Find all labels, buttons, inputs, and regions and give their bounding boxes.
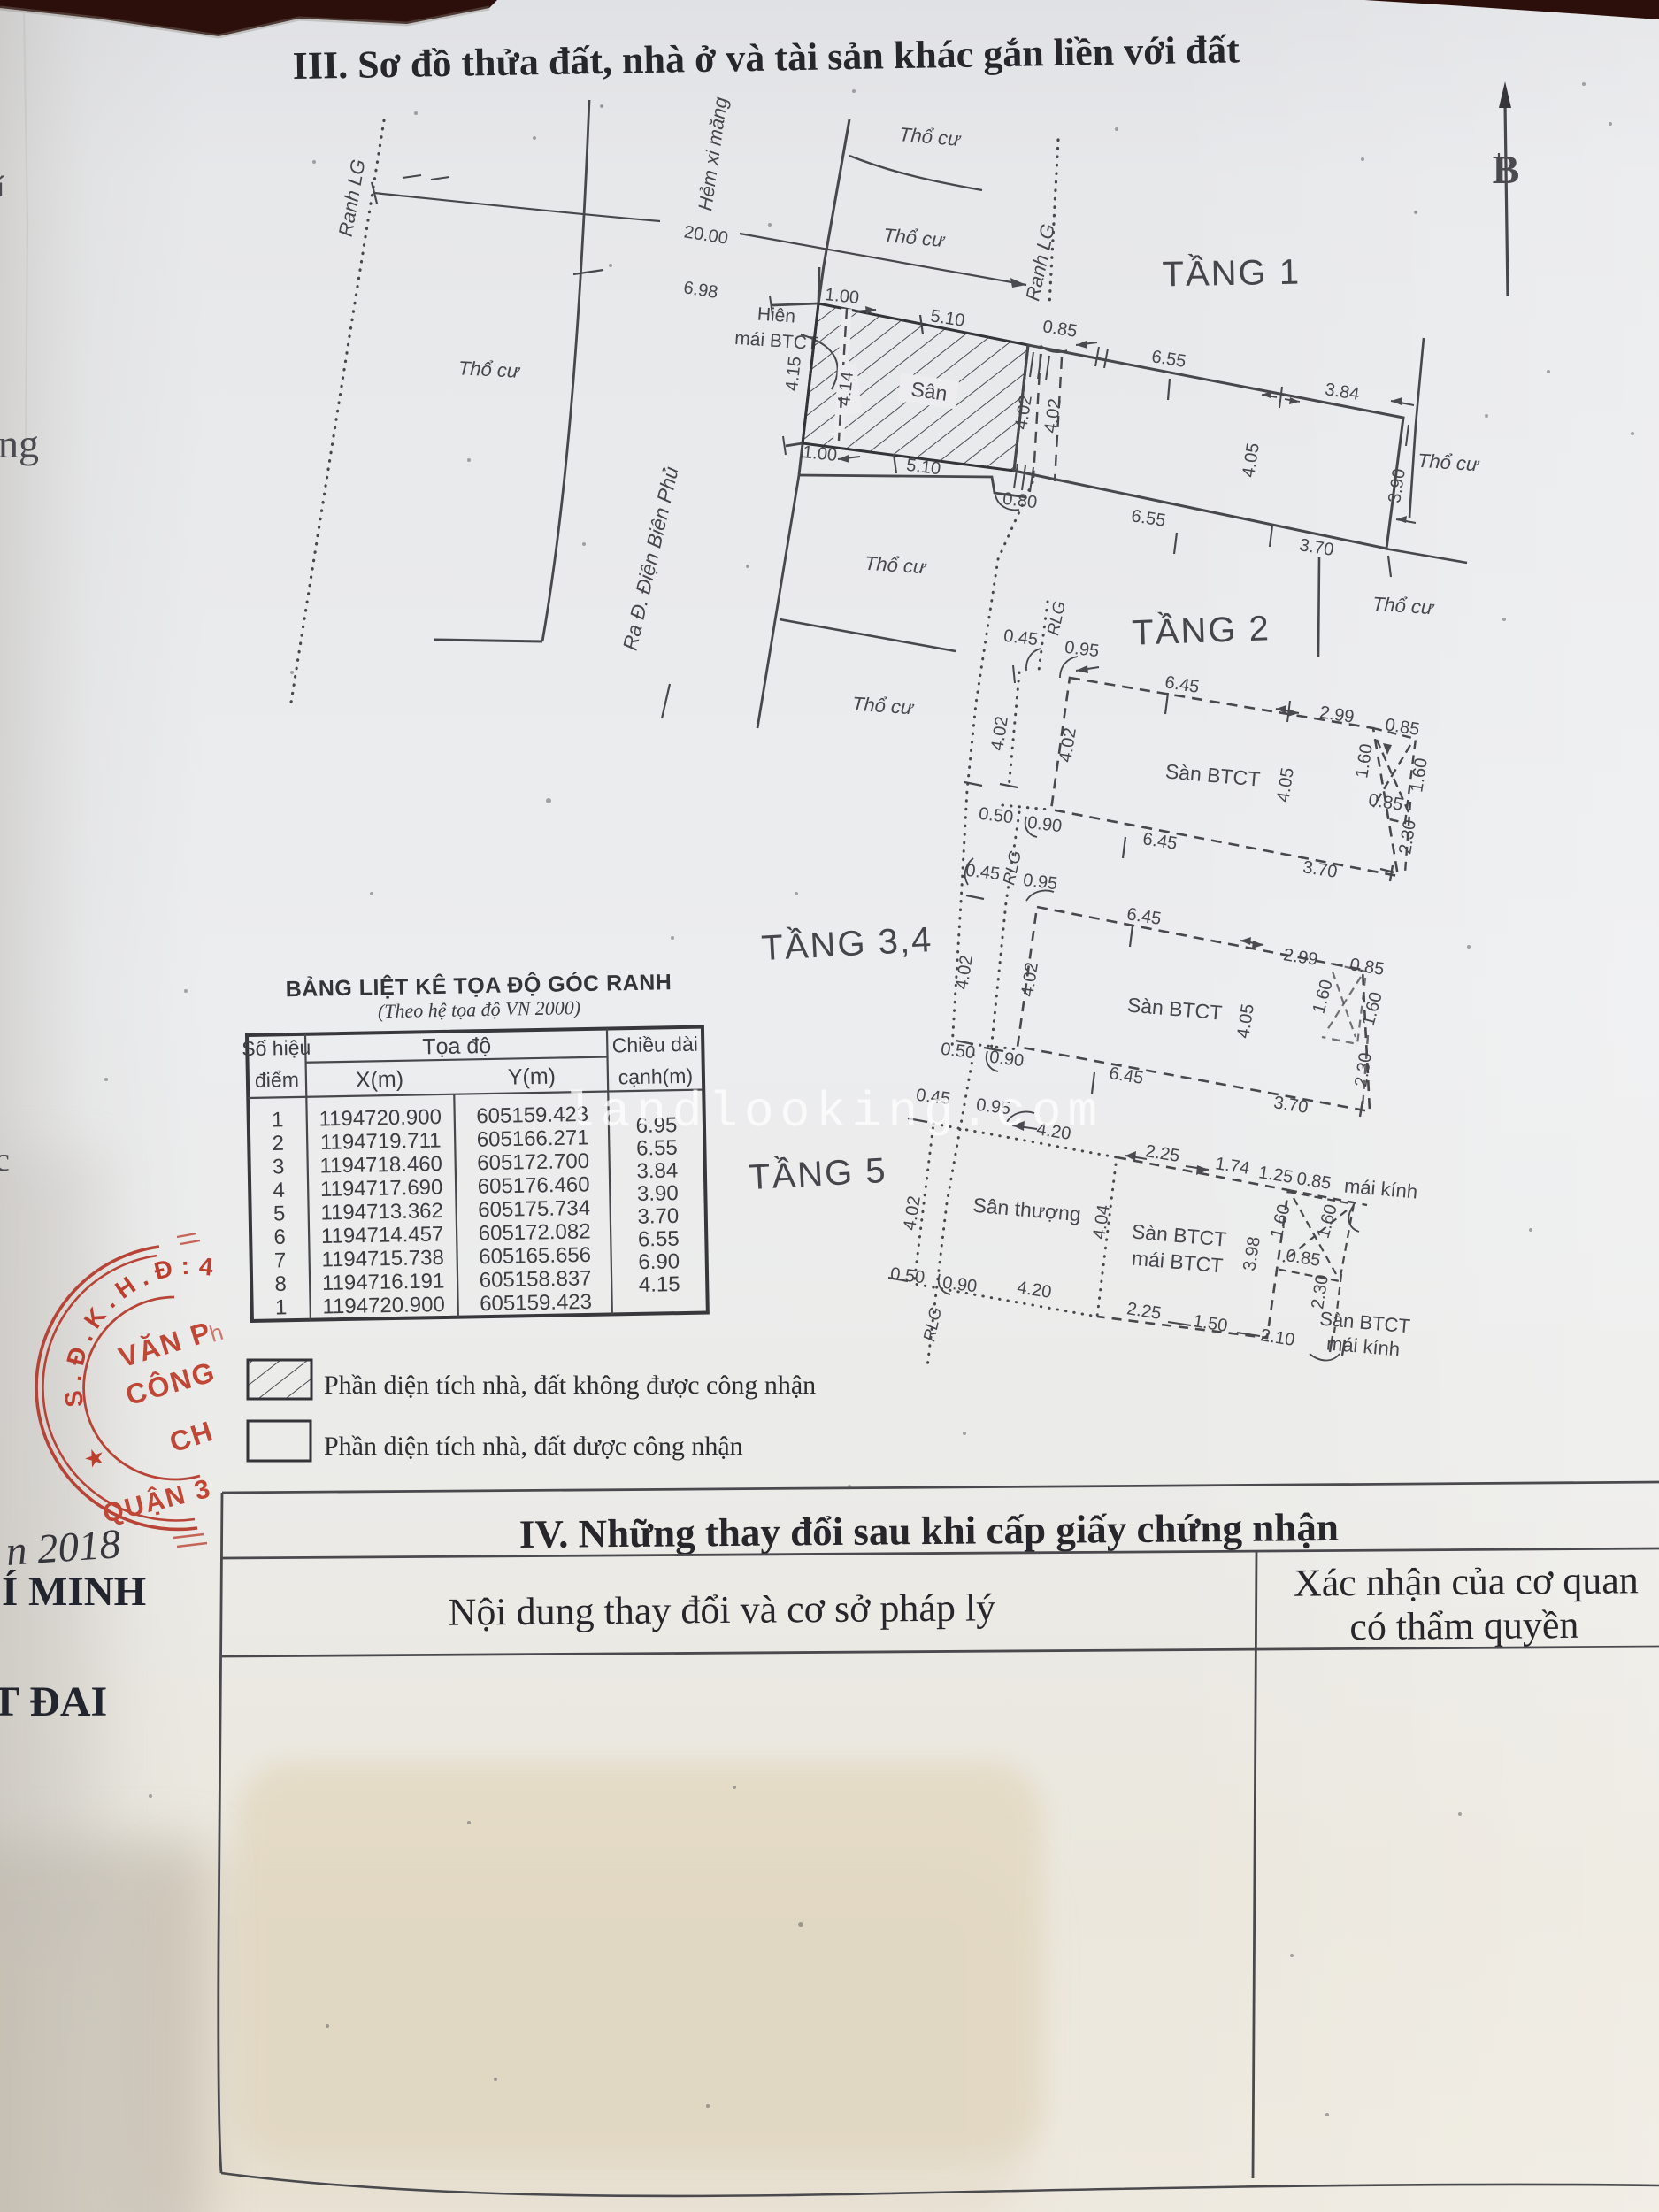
- svg-text:605176.460: 605176.460: [478, 1172, 590, 1198]
- svg-text:í: í: [0, 171, 5, 204]
- svg-text:TẦNG 5: TẦNG 5: [748, 1149, 888, 1197]
- svg-text:1194720.900: 1194720.900: [319, 1105, 442, 1132]
- svg-text:0.50: 0.50: [940, 1040, 976, 1064]
- svg-text:(Theo hệ tọa độ VN 2000): (Theo hệ tọa độ VN 2000): [378, 996, 581, 1022]
- svg-text:1194715.738: 1194715.738: [321, 1246, 444, 1272]
- svg-text:0.90: 0.90: [1026, 813, 1063, 837]
- svg-text:Chiều dài: Chiều dài: [611, 1033, 698, 1057]
- svg-text:Í MINH: Í MINH: [2, 1569, 146, 1615]
- svg-text:3.70: 3.70: [637, 1204, 679, 1229]
- svg-text:6.55: 6.55: [638, 1227, 680, 1252]
- svg-text:Hiên: Hiên: [757, 304, 796, 327]
- svg-text:1: 1: [275, 1295, 288, 1319]
- svg-text:1: 1: [272, 1108, 284, 1132]
- svg-text:605172.082: 605172.082: [479, 1219, 591, 1245]
- svg-text:S: S: [59, 1389, 88, 1409]
- svg-text:1194714.457: 1194714.457: [321, 1222, 444, 1248]
- svg-text:Y(m): Y(m): [508, 1064, 557, 1090]
- svg-text:3: 3: [273, 1155, 285, 1179]
- svg-text:6.90: 6.90: [638, 1249, 680, 1274]
- svg-text:TẦNG 2: TẦNG 2: [1132, 607, 1271, 652]
- svg-text:Phần diện tích nhà, đất không: Phần diện tích nhà, đất không được công …: [324, 1371, 816, 1400]
- svg-text:B: B: [1493, 147, 1520, 192]
- svg-text:1194717.690: 1194717.690: [320, 1175, 443, 1202]
- svg-text:Thổ cư: Thổ cư: [1417, 449, 1481, 476]
- svg-text:4.15: 4.15: [639, 1272, 680, 1297]
- svg-text:4.14: 4.14: [834, 371, 857, 407]
- svg-text:3.90: 3.90: [637, 1181, 679, 1206]
- svg-text:1.00: 1.00: [824, 285, 860, 308]
- svg-text:Phần diện tích nhà, đất được c: Phần diện tích nhà, đất được công nhận: [324, 1432, 743, 1461]
- svg-text:0.45: 0.45: [964, 861, 1001, 885]
- svg-text:1194720.900: 1194720.900: [322, 1293, 445, 1319]
- svg-text:0.90: 0.90: [988, 1048, 1025, 1071]
- svg-text:1.00: 1.00: [802, 442, 838, 465]
- svg-text:605165.656: 605165.656: [479, 1243, 591, 1269]
- svg-text:Tọa độ: Tọa độ: [422, 1033, 491, 1059]
- svg-text:7: 7: [274, 1248, 287, 1272]
- svg-text:Thổ cư: Thổ cư: [851, 693, 916, 719]
- svg-text:X(m): X(m): [356, 1067, 404, 1093]
- svg-text:605158.837: 605158.837: [479, 1266, 591, 1292]
- svg-text:0.50: 0.50: [978, 804, 1014, 828]
- svg-text:Xác nhận của cơ quan: Xác nhận của cơ quan: [1294, 1558, 1639, 1604]
- svg-text:1194718.460: 1194718.460: [319, 1152, 442, 1179]
- svg-text:T ĐAI: T ĐAI: [0, 1678, 107, 1725]
- svg-text:Thổ cư: Thổ cư: [1371, 593, 1436, 619]
- svg-text:Thổ cư: Thổ cư: [864, 552, 928, 579]
- svg-text:5: 5: [273, 1202, 286, 1225]
- svg-text:3.84: 3.84: [636, 1158, 678, 1183]
- svg-text:Số hiệu: Số hiệu: [242, 1036, 311, 1060]
- svg-text:8: 8: [274, 1272, 287, 1296]
- svg-text:1194719.711: 1194719.711: [320, 1128, 442, 1154]
- svg-text:605172.700: 605172.700: [477, 1149, 589, 1175]
- svg-text:có thẩm quyền: có thẩm quyền: [1349, 1603, 1578, 1648]
- svg-text:Nội dung thay đổi và cơ sở phá: Nội dung thay đổi và cơ sở pháp lý: [448, 1586, 995, 1633]
- svg-text:6: 6: [273, 1225, 286, 1249]
- svg-text:landlooking.com: landlooking.com: [565, 1084, 1103, 1141]
- svg-text:0.95: 0.95: [1064, 638, 1100, 662]
- svg-text:ng: ng: [0, 421, 39, 466]
- svg-text:605159.423: 605159.423: [480, 1290, 592, 1316]
- svg-text:4.15: 4.15: [782, 356, 805, 392]
- svg-text:Thổ cư: Thổ cư: [457, 357, 521, 382]
- svg-text:n 2018: n 2018: [4, 1521, 122, 1575]
- svg-text:605175.734: 605175.734: [478, 1196, 590, 1222]
- svg-text:4: 4: [273, 1179, 285, 1202]
- svg-text:c: c: [0, 1141, 10, 1179]
- svg-text:2: 2: [272, 1132, 284, 1156]
- svg-text:1194713.362: 1194713.362: [320, 1199, 443, 1225]
- svg-text:0.45: 0.45: [1002, 626, 1039, 650]
- svg-text:1194716.191: 1194716.191: [322, 1269, 445, 1295]
- svg-text:điểm: điểm: [255, 1068, 299, 1092]
- svg-text:IV. Những thay đổi sau khi cấp: IV. Những thay đổi sau khi cấp giấy chứn…: [519, 1505, 1339, 1556]
- svg-text:0.50: 0.50: [889, 1264, 926, 1288]
- svg-text:TẦNG 1: TẦNG 1: [1162, 251, 1301, 295]
